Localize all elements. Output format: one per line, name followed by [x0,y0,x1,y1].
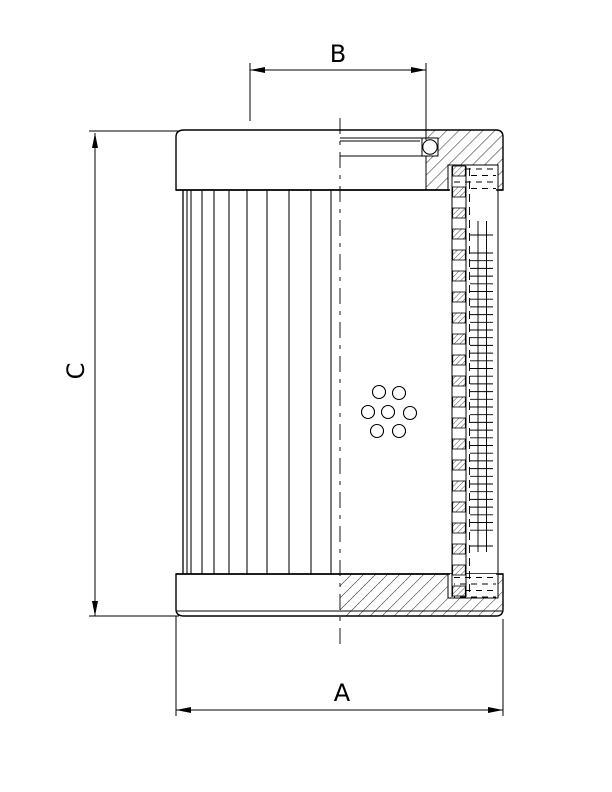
o-ring-seal [422,138,438,156]
dimension-a-label: A [334,679,351,707]
filter-element-section-drawing: BCA [0,0,612,792]
core-block [453,271,466,281]
core-block [453,376,466,386]
core-block [453,502,466,512]
wire-mesh [470,168,494,597]
top-end-cap [176,130,503,191]
mesh-wires [470,235,493,546]
dimension-arrow [488,707,503,713]
perforation-hole [393,387,406,400]
core-block [453,439,466,449]
dimension-b: B [250,40,426,140]
o-ring-groove [422,138,438,156]
core-block [453,313,466,323]
dimension-arrow [411,67,426,73]
core-block [453,229,466,239]
dimension-b-label: B [330,40,346,68]
core-block [453,250,466,260]
core-block [453,544,466,554]
perforation-hole [382,406,395,419]
core-block [453,523,466,533]
perforation-holes [362,386,417,438]
dimension-c-label: C [62,363,90,380]
core-block [453,397,466,407]
pleated-filter-media [183,190,331,574]
core-block [453,460,466,470]
core-block [453,208,466,218]
core-block [453,187,466,197]
core-block [453,481,466,491]
core-tube-section-blocks [453,166,466,596]
perforation-hole [371,425,384,438]
dimension-arrow [176,707,191,713]
core-block [453,166,466,176]
perforation-hole [373,386,386,399]
dimension-arrow [92,601,98,616]
core-block [453,355,466,365]
dimension-c: C [62,131,179,616]
dimension-arrow [250,67,265,73]
drawing-canvas: BCA [0,0,612,792]
core-block [453,565,466,575]
core-block [453,334,466,344]
core-block [453,586,466,596]
core-block [453,418,466,428]
core-tube-ladder [452,166,466,597]
core-block [453,292,466,302]
dimension-arrow [92,133,98,148]
perforation-hole [362,406,375,419]
perforation-hole [393,425,406,438]
perforation-hole [404,407,417,420]
dimension-a: A [176,616,503,716]
